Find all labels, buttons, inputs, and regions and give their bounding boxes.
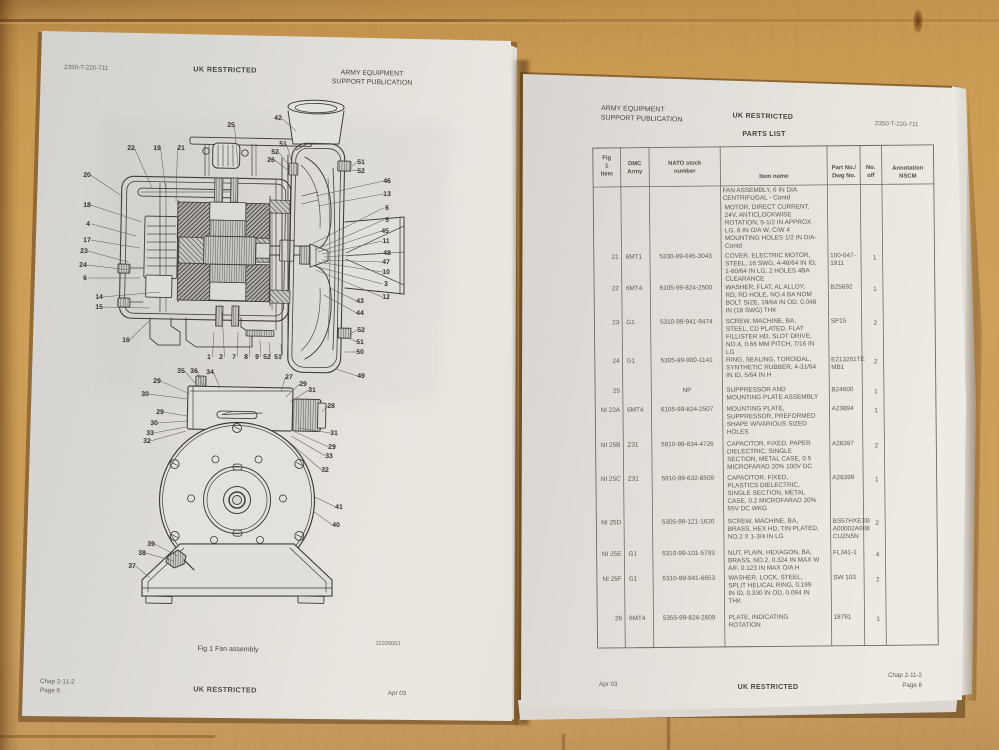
svg-text:Fig 1 Fan assembly: Fig 1 Fan assembly [197, 645, 259, 653]
svg-text:24: 24 [612, 358, 620, 365]
svg-text:A23894: A23894 [832, 405, 855, 412]
svg-text:ARMY EQUIPMENT: ARMY EQUIPMENT [341, 69, 405, 77]
svg-text:18: 18 [83, 202, 91, 209]
svg-text:6: 6 [83, 275, 87, 282]
svg-text:1: 1 [873, 254, 877, 261]
svg-text:41: 41 [335, 504, 343, 511]
svg-text:SUPPORT PUBLICATION: SUPPORT PUBLICATION [332, 78, 413, 87]
svg-text:33: 33 [146, 430, 154, 437]
svg-text:No.: No. [866, 165, 876, 171]
svg-text:SP15: SP15 [831, 318, 847, 325]
svg-text:MOTOR, DIRECT CURRENT,: MOTOR, DIRECT CURRENT, [725, 203, 810, 211]
svg-text:FL341-1: FL341-1 [833, 549, 857, 556]
svg-text:37: 37 [128, 563, 136, 570]
svg-text:NI 23A: NI 23A [601, 407, 621, 414]
svg-text:1: 1 [874, 388, 878, 395]
svg-text:5910-99-632-8509: 5910-99-632-8509 [661, 475, 714, 483]
svg-text:LG: LG [726, 349, 735, 356]
svg-text:25: 25 [227, 122, 235, 129]
svg-text:Page 6: Page 6 [40, 687, 61, 694]
svg-text:2350-T-220-711: 2350-T-220-711 [64, 64, 109, 72]
svg-text:51: 51 [274, 354, 282, 361]
svg-text:B24600: B24600 [831, 386, 854, 393]
svg-text:31: 31 [308, 387, 316, 394]
svg-text:UK RESTRICTED: UK RESTRICTED [738, 684, 799, 691]
svg-text:SW 103: SW 103 [833, 574, 856, 581]
svg-text:Apr 03: Apr 03 [599, 681, 618, 688]
svg-text:30: 30 [150, 420, 158, 427]
svg-text:6MT4: 6MT4 [629, 615, 646, 622]
svg-text:UK RESTRICTED: UK RESTRICTED [732, 112, 793, 121]
svg-text:40: 40 [332, 522, 340, 529]
svg-text:NI 25B: NI 25B [601, 442, 621, 449]
svg-text:5305-99-900-1141: 5305-99-900-1141 [661, 357, 714, 365]
svg-text:CAPACITOR, FIXED, PAPER: CAPACITOR, FIXED, PAPER [727, 440, 811, 448]
svg-text:NATO stock: NATO stock [668, 161, 702, 167]
svg-text:5310-99-101-5793: 5310-99-101-5793 [662, 550, 715, 558]
svg-text:G1: G1 [626, 319, 635, 326]
svg-text:2: 2 [875, 520, 879, 527]
svg-text:52: 52 [271, 149, 279, 156]
svg-text:NP: NP [682, 387, 691, 394]
svg-text:5355-99-824-2609: 5355-99-824-2609 [663, 614, 716, 622]
svg-text:WASHER, LOCK, STEEL,: WASHER, LOCK, STEEL, [728, 574, 803, 582]
svg-text:52: 52 [357, 168, 365, 175]
svg-text:THK: THK [728, 598, 742, 605]
svg-text:47: 47 [382, 259, 390, 266]
svg-text:30: 30 [141, 391, 149, 398]
svg-text:UK RESTRICTED: UK RESTRICTED [193, 684, 257, 694]
svg-text:G1: G1 [627, 358, 636, 365]
svg-text:RING, SEALING, TOROIDAL,: RING, SEALING, TOROIDAL, [726, 356, 811, 364]
svg-text:1: 1 [875, 476, 879, 483]
svg-text:1: 1 [876, 616, 880, 623]
svg-text:13: 13 [383, 191, 391, 198]
svg-text:16: 16 [122, 337, 130, 344]
svg-text:NO.4, 0.66 MM PITCH, 7/16 IN: NO.4, 0.66 MM PITCH, 7/16 IN [726, 341, 815, 349]
svg-text:2: 2 [219, 354, 223, 361]
svg-text:28: 28 [327, 403, 335, 410]
svg-text:22: 22 [127, 145, 135, 152]
svg-text:Z31: Z31 [627, 442, 639, 449]
svg-text:MICROFARAD 20% 100V DC: MICROFARAD 20% 100V DC [727, 463, 812, 471]
svg-text:1: 1 [207, 354, 211, 361]
svg-text:MOUNTING PLATE ASSEMBLY: MOUNTING PLATE ASSEMBLY [726, 394, 819, 402]
svg-text:17: 17 [83, 237, 91, 244]
svg-text:SYNTHETIC RUBBER, 4-31/64: SYNTHETIC RUBBER, 4-31/64 [726, 364, 816, 372]
svg-text:Contd: Contd [725, 243, 743, 250]
svg-text:5910-99-634-4726: 5910-99-634-4726 [661, 441, 714, 449]
svg-text:32: 32 [321, 467, 329, 474]
svg-text:Chap 2-11-2: Chap 2-11-2 [40, 678, 75, 686]
svg-text:5305-99-121-1620: 5305-99-121-1620 [662, 518, 715, 526]
svg-text:46: 46 [383, 178, 391, 185]
svg-text:24: 24 [79, 262, 87, 269]
svg-text:CENTRIFUGAL - Contd: CENTRIFUGAL - Contd [723, 194, 791, 202]
svg-text:IN (18 SWG) THK: IN (18 SWG) THK [726, 307, 778, 314]
svg-text:26: 26 [615, 615, 623, 622]
svg-text:35: 35 [177, 368, 185, 375]
svg-text:6105-99-824-2507: 6105-99-824-2507 [661, 406, 714, 414]
svg-text:Chap 2-11-2: Chap 2-11-2 [888, 672, 922, 679]
svg-text:52: 52 [357, 327, 365, 334]
svg-text:33: 33 [325, 453, 333, 460]
svg-text:27: 27 [285, 374, 293, 381]
svg-text:1: 1 [874, 407, 878, 414]
svg-text:2: 2 [874, 358, 878, 365]
svg-text:G1: G1 [628, 551, 637, 558]
svg-text:Army: Army [627, 169, 643, 175]
svg-text:51: 51 [279, 141, 287, 148]
svg-text:BRASS, NO.2, 0.324 IN MAX W: BRASS, NO.2, 0.324 IN MAX W [728, 557, 820, 565]
svg-text:BRASS, HEX HD, TIN PLATED,: BRASS, HEX HD, TIN PLATED, [728, 525, 819, 533]
svg-text:4: 4 [86, 221, 90, 228]
svg-text:Part No./: Part No./ [832, 165, 857, 171]
svg-text:off: off [867, 173, 875, 179]
svg-text:SUPPORT PUBLICATION: SUPPORT PUBLICATION [601, 114, 683, 123]
svg-text:NI 25D: NI 25D [601, 519, 621, 526]
svg-text:6: 6 [385, 205, 389, 212]
svg-text:29: 29 [328, 444, 336, 451]
svg-text:UK RESTRICTED: UK RESTRICTED [193, 64, 257, 74]
svg-text:DIELECTRIC, SINGLE: DIELECTRIC, SINGLE [727, 448, 792, 456]
svg-text:A28397: A28397 [832, 440, 855, 447]
svg-text:12: 12 [382, 294, 390, 301]
svg-text:23: 23 [80, 248, 88, 255]
svg-text:31: 31 [330, 430, 338, 437]
svg-text:23: 23 [612, 319, 620, 326]
svg-text:8: 8 [244, 354, 248, 361]
svg-text:B25692: B25692 [830, 284, 853, 291]
svg-text:MB1: MB1 [831, 364, 845, 371]
svg-text:A28399: A28399 [832, 474, 855, 481]
svg-text:43: 43 [356, 298, 364, 305]
svg-text:RD, RD HOLE, NO.4 BA NOM: RD, RD HOLE, NO.4 BA NOM [725, 291, 811, 299]
svg-text:SHAPE W/VARIOUS SIZED: SHAPE W/VARIOUS SIZED [727, 420, 808, 428]
svg-text:BS57HXEXB: BS57HXEXB [833, 517, 870, 524]
svg-text:NI 25C: NI 25C [601, 476, 621, 483]
svg-text:Page 8: Page 8 [902, 682, 922, 689]
svg-text:50: 50 [356, 349, 364, 356]
svg-text:5: 5 [385, 217, 389, 224]
svg-text:49: 49 [357, 373, 365, 380]
svg-text:6MT4: 6MT4 [627, 407, 644, 414]
svg-text:FAN ASSEMBLY, 6 IN DIA: FAN ASSEMBLY, 6 IN DIA [722, 187, 798, 195]
svg-text:14: 14 [95, 294, 103, 301]
svg-text:CASE, 0.2 MICROFARAD 20%: CASE, 0.2 MICROFARAD 20% [727, 497, 816, 505]
svg-text:65V DC WKG: 65V DC WKG [728, 505, 768, 512]
svg-text:22: 22 [612, 285, 620, 292]
svg-text:9: 9 [255, 354, 259, 361]
svg-text:4: 4 [876, 551, 880, 558]
svg-text:26: 26 [267, 157, 275, 164]
svg-text:21: 21 [611, 254, 619, 261]
svg-text:7: 7 [232, 354, 236, 361]
svg-text:2: 2 [876, 576, 880, 583]
svg-text:15: 15 [95, 304, 103, 311]
svg-text:24V, ANTICLOCKWISE: 24V, ANTICLOCKWISE [725, 211, 792, 219]
svg-text:SUPPRESSOR AND: SUPPRESSOR AND [726, 386, 786, 394]
svg-text:SINGLE SECTION, METAL: SINGLE SECTION, METAL [727, 489, 806, 497]
svg-text:11020001: 11020001 [375, 641, 400, 648]
svg-text:52: 52 [263, 354, 271, 361]
svg-text:Item: Item [601, 171, 613, 177]
svg-text:39: 39 [147, 541, 155, 548]
svg-text:51: 51 [357, 159, 365, 166]
svg-text:29: 29 [153, 378, 161, 385]
svg-text:A/F, 0.123 IN MAX O/A H: A/F, 0.123 IN MAX O/A H [728, 564, 800, 572]
svg-text:ARMY EQUIPMENT: ARMY EQUIPMENT [601, 105, 666, 114]
svg-text:34: 34 [206, 369, 214, 376]
svg-text:SECTION, METAL CASE, 0.5: SECTION, METAL CASE, 0.5 [727, 455, 812, 463]
svg-text:ROTATION, 5-1/2 IN APPROX: ROTATION, 5-1/2 IN APPROX [725, 219, 812, 227]
svg-text:100-047-: 100-047- [830, 252, 856, 259]
svg-text:25: 25 [613, 388, 621, 395]
svg-text:SPLIT HELICAL RING, 0.199: SPLIT HELICAL RING, 0.199 [728, 582, 812, 590]
svg-text:1: 1 [873, 286, 877, 293]
svg-text:COVER, ELECTRIC MOTOR,: COVER, ELECTRIC MOTOR, [725, 252, 810, 260]
svg-text:MOUNTING PLATE,: MOUNTING PLATE, [727, 405, 785, 413]
svg-text:5330-99-045-3043: 5330-99-045-3043 [659, 253, 712, 261]
svg-text:11: 11 [382, 238, 390, 245]
svg-text:E213261TE: E213261TE [831, 356, 865, 363]
svg-text:Apr 03: Apr 03 [388, 690, 407, 697]
svg-text:SCREW, MACHINE, BA,: SCREW, MACHINE, BA, [726, 318, 797, 326]
svg-text:45: 45 [381, 228, 389, 235]
svg-text:FILLISTER HD, SLOT DRIVE,: FILLISTER HD, SLOT DRIVE, [726, 333, 812, 341]
svg-text:LG, 6 IN O/A W, C/W 4: LG, 6 IN O/A W, C/W 4 [725, 227, 790, 235]
svg-text:WASHER, FLAT, AL ALLOY,: WASHER, FLAT, AL ALLOY, [725, 283, 805, 291]
svg-text:ROTATION: ROTATION [729, 622, 762, 629]
svg-text:Item name: Item name [759, 174, 789, 180]
svg-text:48: 48 [383, 250, 391, 257]
svg-text:36: 36 [190, 368, 198, 375]
svg-text:44: 44 [356, 310, 364, 317]
svg-text:NO.2 X 1-3/4 IN LG: NO.2 X 1-3/4 IN LG [728, 533, 784, 541]
svg-text:29: 29 [156, 409, 164, 416]
svg-text:BOLT SIZE, 19/64 IN OD, 0.048: BOLT SIZE, 19/64 IN OD, 0.048 [726, 299, 817, 307]
svg-text:Z31: Z31 [628, 476, 640, 483]
svg-text:3: 3 [384, 281, 388, 288]
svg-text:G1: G1 [629, 576, 638, 583]
svg-text:32: 32 [143, 438, 151, 445]
svg-text:NUT, PLAIN, HEXAGON, BA,: NUT, PLAIN, HEXAGON, BA, [728, 549, 812, 557]
svg-text:2: 2 [873, 320, 877, 327]
svg-text:SUPPRESSOR, PREFORMED: SUPPRESSOR, PREFORMED [727, 413, 816, 421]
svg-text:42: 42 [274, 115, 282, 122]
svg-text:6105-99-824-2500: 6105-99-824-2500 [660, 284, 713, 292]
svg-text:2350-T-220-711: 2350-T-220-711 [875, 120, 919, 128]
svg-text:IN ID, 5/64 IN H: IN ID, 5/64 IN H [726, 372, 772, 379]
svg-text:NSCM: NSCM [899, 174, 916, 180]
svg-text:5310-99-941-9474: 5310-99-941-9474 [660, 318, 713, 326]
svg-text:CUZN5N: CUZN5N [833, 533, 859, 540]
svg-text:19: 19 [153, 145, 161, 152]
svg-text:1-60/64 IN LG, 2 HOLES 4BA: 1-60/64 IN LG, 2 HOLES 4BA [725, 267, 810, 275]
svg-text:STEEL, CD PLATED, FLAT: STEEL, CD PLATED, FLAT [726, 325, 804, 333]
svg-text:Dwg No.: Dwg No. [832, 173, 856, 179]
svg-text:Annotation: Annotation [892, 165, 924, 171]
svg-text:PARTS LIST: PARTS LIST [742, 131, 786, 138]
svg-text:29: 29 [299, 381, 307, 388]
svg-text:20: 20 [83, 172, 91, 179]
svg-text:38: 38 [138, 550, 146, 557]
svg-text:MOUNTING HOLES 1/2 IN DIA-: MOUNTING HOLES 1/2 IN DIA- [725, 234, 817, 242]
svg-text:PLASTICS DIELECTRIC,: PLASTICS DIELECTRIC, [727, 482, 800, 490]
svg-text:CLEARANCE: CLEARANCE [725, 275, 764, 282]
svg-text:IN ID, 0.330 IN OD, 0.094 IN: IN ID, 0.330 IN OD, 0.094 IN [728, 589, 810, 597]
svg-text:NI 25F: NI 25F [602, 576, 621, 583]
svg-text:NI 25E: NI 25E [602, 551, 622, 558]
svg-text:PLATE, INDICATING: PLATE, INDICATING [729, 614, 789, 622]
svg-text:21: 21 [177, 145, 185, 152]
svg-text:1: 1 [605, 163, 609, 169]
svg-text:CAPACITOR, FIXED,: CAPACITOR, FIXED, [727, 474, 788, 482]
svg-text:A00002A008: A00002A008 [833, 525, 870, 532]
svg-text:10: 10 [382, 269, 390, 276]
svg-text:Fig: Fig [602, 155, 611, 161]
svg-text:1911: 1911 [830, 260, 844, 267]
svg-text:SCREW, MACHINE, BA,: SCREW, MACHINE, BA, [728, 518, 799, 526]
svg-text:2: 2 [875, 442, 879, 449]
svg-text:DMC: DMC [628, 161, 642, 167]
svg-text:18791: 18791 [834, 614, 852, 621]
svg-text:6MT4: 6MT4 [626, 285, 643, 292]
svg-text:6MT1: 6MT1 [626, 254, 643, 261]
svg-text:STEEL, 16 SWG, 4-48/64 IN ID,: STEEL, 16 SWG, 4-48/64 IN ID, [725, 260, 817, 268]
svg-text:5310-99-941-6653: 5310-99-941-6653 [662, 575, 715, 583]
svg-text:51: 51 [356, 339, 364, 346]
svg-text:number: number [674, 169, 696, 175]
svg-text:HOLES: HOLES [727, 429, 749, 436]
